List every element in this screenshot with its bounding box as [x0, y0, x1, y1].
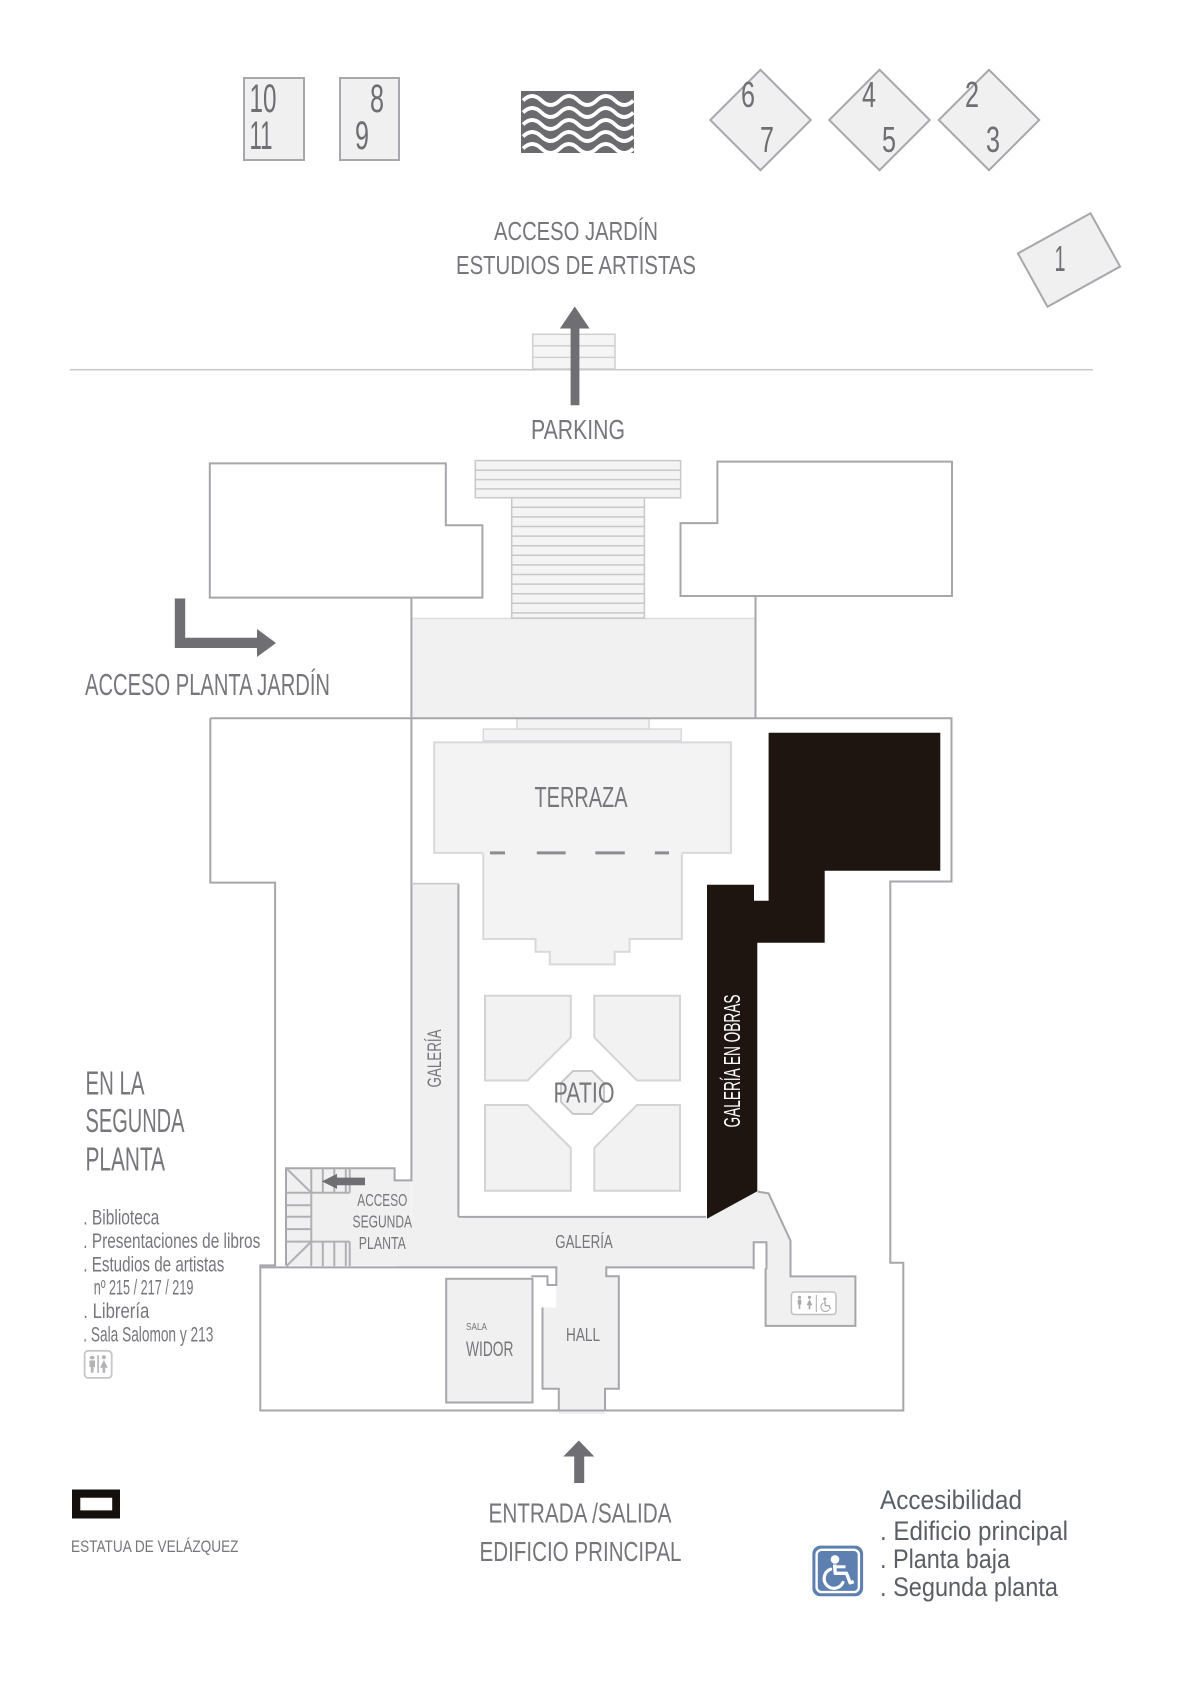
svg-text:EN LA: EN LA [86, 1065, 145, 1102]
svg-text:ESTUDIOS DE ARTISTAS: ESTUDIOS DE ARTISTAS [456, 250, 696, 280]
svg-text:GALERÍA: GALERÍA [555, 1231, 613, 1252]
svg-text:ESTATUA DE VELÁZQUEZ: ESTATUA DE VELÁZQUEZ [71, 1537, 239, 1556]
svg-text:. Planta baja: . Planta baja [880, 1544, 1011, 1574]
svg-text:. Biblioteca: . Biblioteca [83, 1207, 159, 1230]
svg-text:PATIO: PATIO [554, 1078, 615, 1110]
svg-text:SALA: SALA [466, 1321, 487, 1333]
svg-text:GALERÍA: GALERÍA [423, 1030, 446, 1088]
svg-text:. Librería: . Librería [83, 1300, 149, 1323]
svg-text:HALL: HALL [566, 1325, 600, 1345]
svg-text:4: 4 [862, 74, 876, 115]
svg-text:2: 2 [965, 74, 979, 115]
svg-text:5: 5 [882, 119, 896, 160]
svg-text:PLANTA: PLANTA [86, 1141, 166, 1178]
svg-text:Accesibilidad: Accesibilidad [880, 1485, 1022, 1515]
svg-text:ACCESO PLANTA JARDÍN: ACCESO PLANTA JARDÍN [85, 667, 330, 702]
svg-text:PARKING: PARKING [531, 414, 625, 445]
svg-text:9: 9 [355, 114, 369, 158]
svg-text:8: 8 [370, 77, 384, 121]
svg-text:GALERÍA EN OBRAS: GALERÍA EN OBRAS [719, 995, 745, 1128]
svg-text:WIDOR: WIDOR [466, 1338, 514, 1361]
svg-text:. Presentaciones de libros: . Presentaciones de libros [83, 1230, 260, 1253]
svg-text:1: 1 [1055, 238, 1066, 279]
svg-text:nº 215 / 217 / 219: nº 215 / 217 / 219 [94, 1277, 194, 1300]
svg-text:6: 6 [741, 74, 755, 115]
svg-text:3: 3 [986, 119, 1000, 160]
svg-text:ENTRADA /SALIDA: ENTRADA /SALIDA [489, 1498, 672, 1529]
svg-text:SEGUNDA: SEGUNDA [86, 1102, 185, 1139]
svg-text:. Edificio principal: . Edificio principal [880, 1516, 1068, 1546]
svg-text:PLANTA: PLANTA [359, 1233, 406, 1253]
svg-text:11: 11 [250, 114, 273, 158]
svg-text:SEGUNDA: SEGUNDA [353, 1212, 413, 1232]
svg-text:7: 7 [760, 119, 774, 160]
svg-text:EDIFICIO PRINCIPAL: EDIFICIO PRINCIPAL [480, 1536, 682, 1567]
svg-text:TERRAZA: TERRAZA [535, 782, 628, 814]
svg-text:ACCESO: ACCESO [357, 1190, 407, 1210]
svg-text:ACCESO JARDÍN: ACCESO JARDÍN [494, 216, 658, 246]
svg-text:. Estudios de artistas: . Estudios de artistas [83, 1253, 224, 1276]
svg-text:. Sala Salomon y 213: . Sala Salomon y 213 [83, 1323, 213, 1346]
svg-text:. Segunda planta: . Segunda planta [880, 1572, 1059, 1602]
